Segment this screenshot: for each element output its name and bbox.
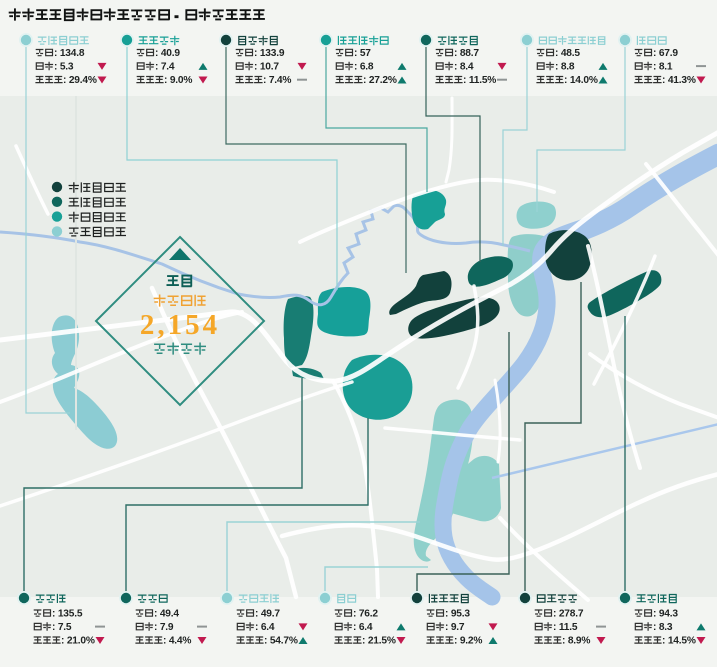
- svg-text:: 48.5: : 48.5: [555, 48, 580, 59]
- svg-text:: 49.7: : 49.7: [255, 608, 280, 619]
- svg-text:: 11.5: : 11.5: [553, 622, 578, 633]
- svg-text:: 21.0%: : 21.0%: [61, 636, 95, 647]
- svg-text:: 41.3%: : 41.3%: [662, 75, 696, 86]
- svg-text:: 54.7%: : 54.7%: [264, 636, 298, 647]
- svg-text:: 9.0%: : 9.0%: [164, 75, 192, 86]
- svg-text:: 8.3: : 8.3: [653, 622, 673, 633]
- svg-text:: 8.1: : 8.1: [653, 61, 673, 72]
- svg-text:: 134.8: : 134.8: [54, 48, 85, 59]
- svg-text:: 8.8: : 8.8: [555, 61, 575, 72]
- svg-text:: 6.4: : 6.4: [255, 622, 275, 633]
- svg-text:: 76.2: : 76.2: [353, 608, 378, 619]
- svg-text:: 9.2%: : 9.2%: [454, 636, 482, 647]
- svg-text:: 57: : 57: [354, 48, 371, 59]
- svg-text:: 133.9: : 133.9: [254, 48, 285, 59]
- svg-text:: 278.7: : 278.7: [553, 608, 584, 619]
- svg-text:: 7.4%: : 7.4%: [263, 75, 291, 86]
- svg-text:: 8.4: : 8.4: [454, 61, 474, 72]
- svg-text:: 40.9: : 40.9: [155, 48, 180, 59]
- svg-text:: 5.3: : 5.3: [54, 61, 74, 72]
- svg-text:: 6.4: : 6.4: [353, 622, 373, 633]
- svg-text:: 49.4: : 49.4: [154, 608, 179, 619]
- svg-text:: 135.5: : 135.5: [52, 608, 83, 619]
- svg-text:: 4.4%: : 4.4%: [163, 636, 191, 647]
- svg-text:: 14.5%: : 14.5%: [662, 636, 696, 647]
- svg-text:: 67.9: : 67.9: [653, 48, 678, 59]
- svg-text:: 10.7: : 10.7: [254, 61, 279, 72]
- svg-text:: 7.5: : 7.5: [52, 622, 72, 633]
- svg-text:: 9.7: : 9.7: [445, 622, 465, 633]
- svg-text:2,154: 2,154: [140, 309, 220, 341]
- svg-text:: 29.4%: : 29.4%: [63, 75, 97, 86]
- svg-text:: 95.3: : 95.3: [445, 608, 470, 619]
- svg-text:: 88.7: : 88.7: [454, 48, 479, 59]
- svg-text:: 21.5%: : 21.5%: [362, 636, 396, 647]
- svg-text:: 11.5%: : 11.5%: [463, 75, 496, 86]
- svg-text:: 6.8: : 6.8: [354, 61, 374, 72]
- svg-text:: 7.9: : 7.9: [154, 622, 174, 633]
- svg-text:: 7.4: : 7.4: [155, 61, 175, 72]
- svg-text:: 94.3: : 94.3: [653, 608, 678, 619]
- svg-text:: 8.9%: : 8.9%: [562, 636, 590, 647]
- svg-text:: 14.0%: : 14.0%: [564, 75, 598, 86]
- svg-text:: 27.2%: : 27.2%: [363, 75, 397, 86]
